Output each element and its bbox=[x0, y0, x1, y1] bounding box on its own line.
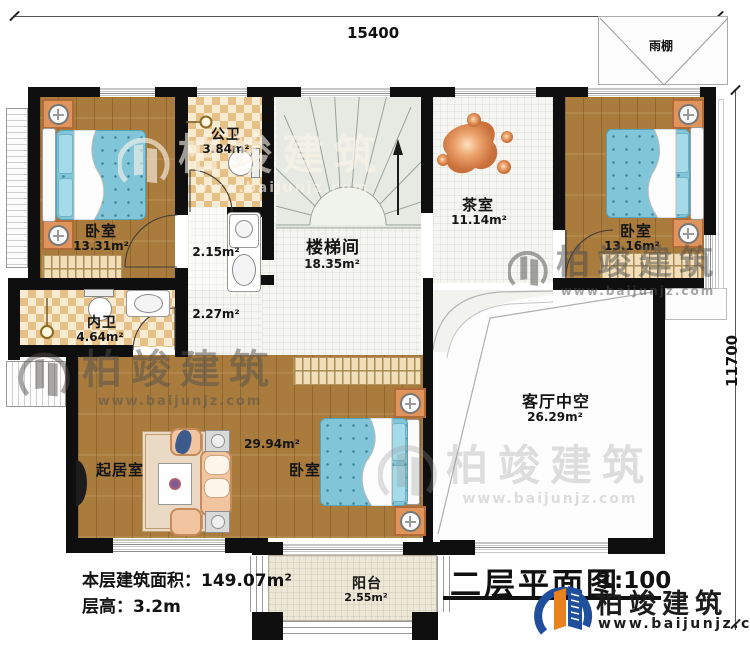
room-area: 13.16m² bbox=[604, 240, 660, 252]
room-area: 26.29m² bbox=[527, 411, 583, 423]
lamp-icon bbox=[678, 223, 699, 244]
room-label: 起居室 bbox=[96, 463, 144, 478]
sofa-cushion bbox=[204, 478, 230, 498]
room-area: 2.55m² bbox=[344, 592, 387, 603]
nightstand bbox=[42, 220, 74, 250]
nightstand bbox=[672, 218, 704, 248]
bed-headboard bbox=[42, 128, 56, 222]
room-label: 客厅中空 bbox=[522, 394, 590, 410]
decor bbox=[169, 478, 181, 490]
washer-door bbox=[235, 220, 253, 238]
floor-plan: 15400 11700 雨棚 bbox=[0, 0, 750, 648]
brand-block: 柏竣建筑 www.baijunjz.com bbox=[534, 578, 744, 642]
nightstand bbox=[672, 99, 704, 129]
room-area: 13.31m² bbox=[73, 240, 129, 252]
tea-table-art bbox=[430, 112, 535, 197]
side-table bbox=[205, 430, 230, 452]
room-area: 3.84m² bbox=[202, 143, 249, 155]
room-label: 茶室 bbox=[462, 198, 494, 213]
room-area: 29.94m² bbox=[244, 438, 300, 450]
coffee-table bbox=[158, 463, 192, 505]
room-area: 2.27m² bbox=[192, 308, 239, 320]
room-area: 2.15m² bbox=[192, 246, 239, 258]
room-label: 阳台 bbox=[352, 577, 382, 591]
bed-headboard bbox=[406, 419, 420, 505]
side-table bbox=[205, 511, 230, 533]
bed-blanket bbox=[56, 130, 146, 220]
room-area: 4.64m² bbox=[76, 331, 123, 343]
nightstand bbox=[42, 99, 74, 129]
toilet-tank bbox=[84, 289, 114, 297]
nightstand bbox=[394, 506, 426, 536]
room-label: 卧室 bbox=[289, 463, 321, 478]
lamp-icon bbox=[48, 104, 69, 125]
armchair bbox=[170, 508, 202, 536]
lamp-icon bbox=[678, 104, 699, 125]
sofa-cushion bbox=[204, 455, 230, 475]
bed-headboard bbox=[690, 127, 704, 220]
room-label: 楼梯间 bbox=[306, 240, 360, 257]
shower-head bbox=[38, 298, 58, 340]
bed-blanket bbox=[606, 129, 690, 218]
room-area: 11.14m² bbox=[451, 214, 507, 226]
room-label: 卧室 bbox=[620, 224, 652, 239]
room-label: 公卫 bbox=[211, 128, 241, 142]
lamp-icon bbox=[400, 511, 421, 532]
room-label: 内卫 bbox=[87, 316, 117, 330]
stats-height-line: 层高：3.2m bbox=[82, 592, 181, 617]
lamp-icon bbox=[400, 393, 421, 414]
brand-url: www.baijunjz.com bbox=[598, 616, 750, 632]
washbasin bbox=[134, 294, 163, 313]
brand-logo-icon bbox=[534, 580, 594, 642]
lamp-icon bbox=[48, 225, 69, 246]
bed-blanket bbox=[320, 418, 408, 506]
room-area: 18.35m² bbox=[304, 258, 360, 270]
stats-area-line: 本层建筑面积：149.07m² bbox=[82, 566, 292, 591]
room-label: 卧室 bbox=[85, 224, 117, 239]
nightstand bbox=[394, 388, 426, 418]
light-fixture bbox=[186, 112, 214, 132]
